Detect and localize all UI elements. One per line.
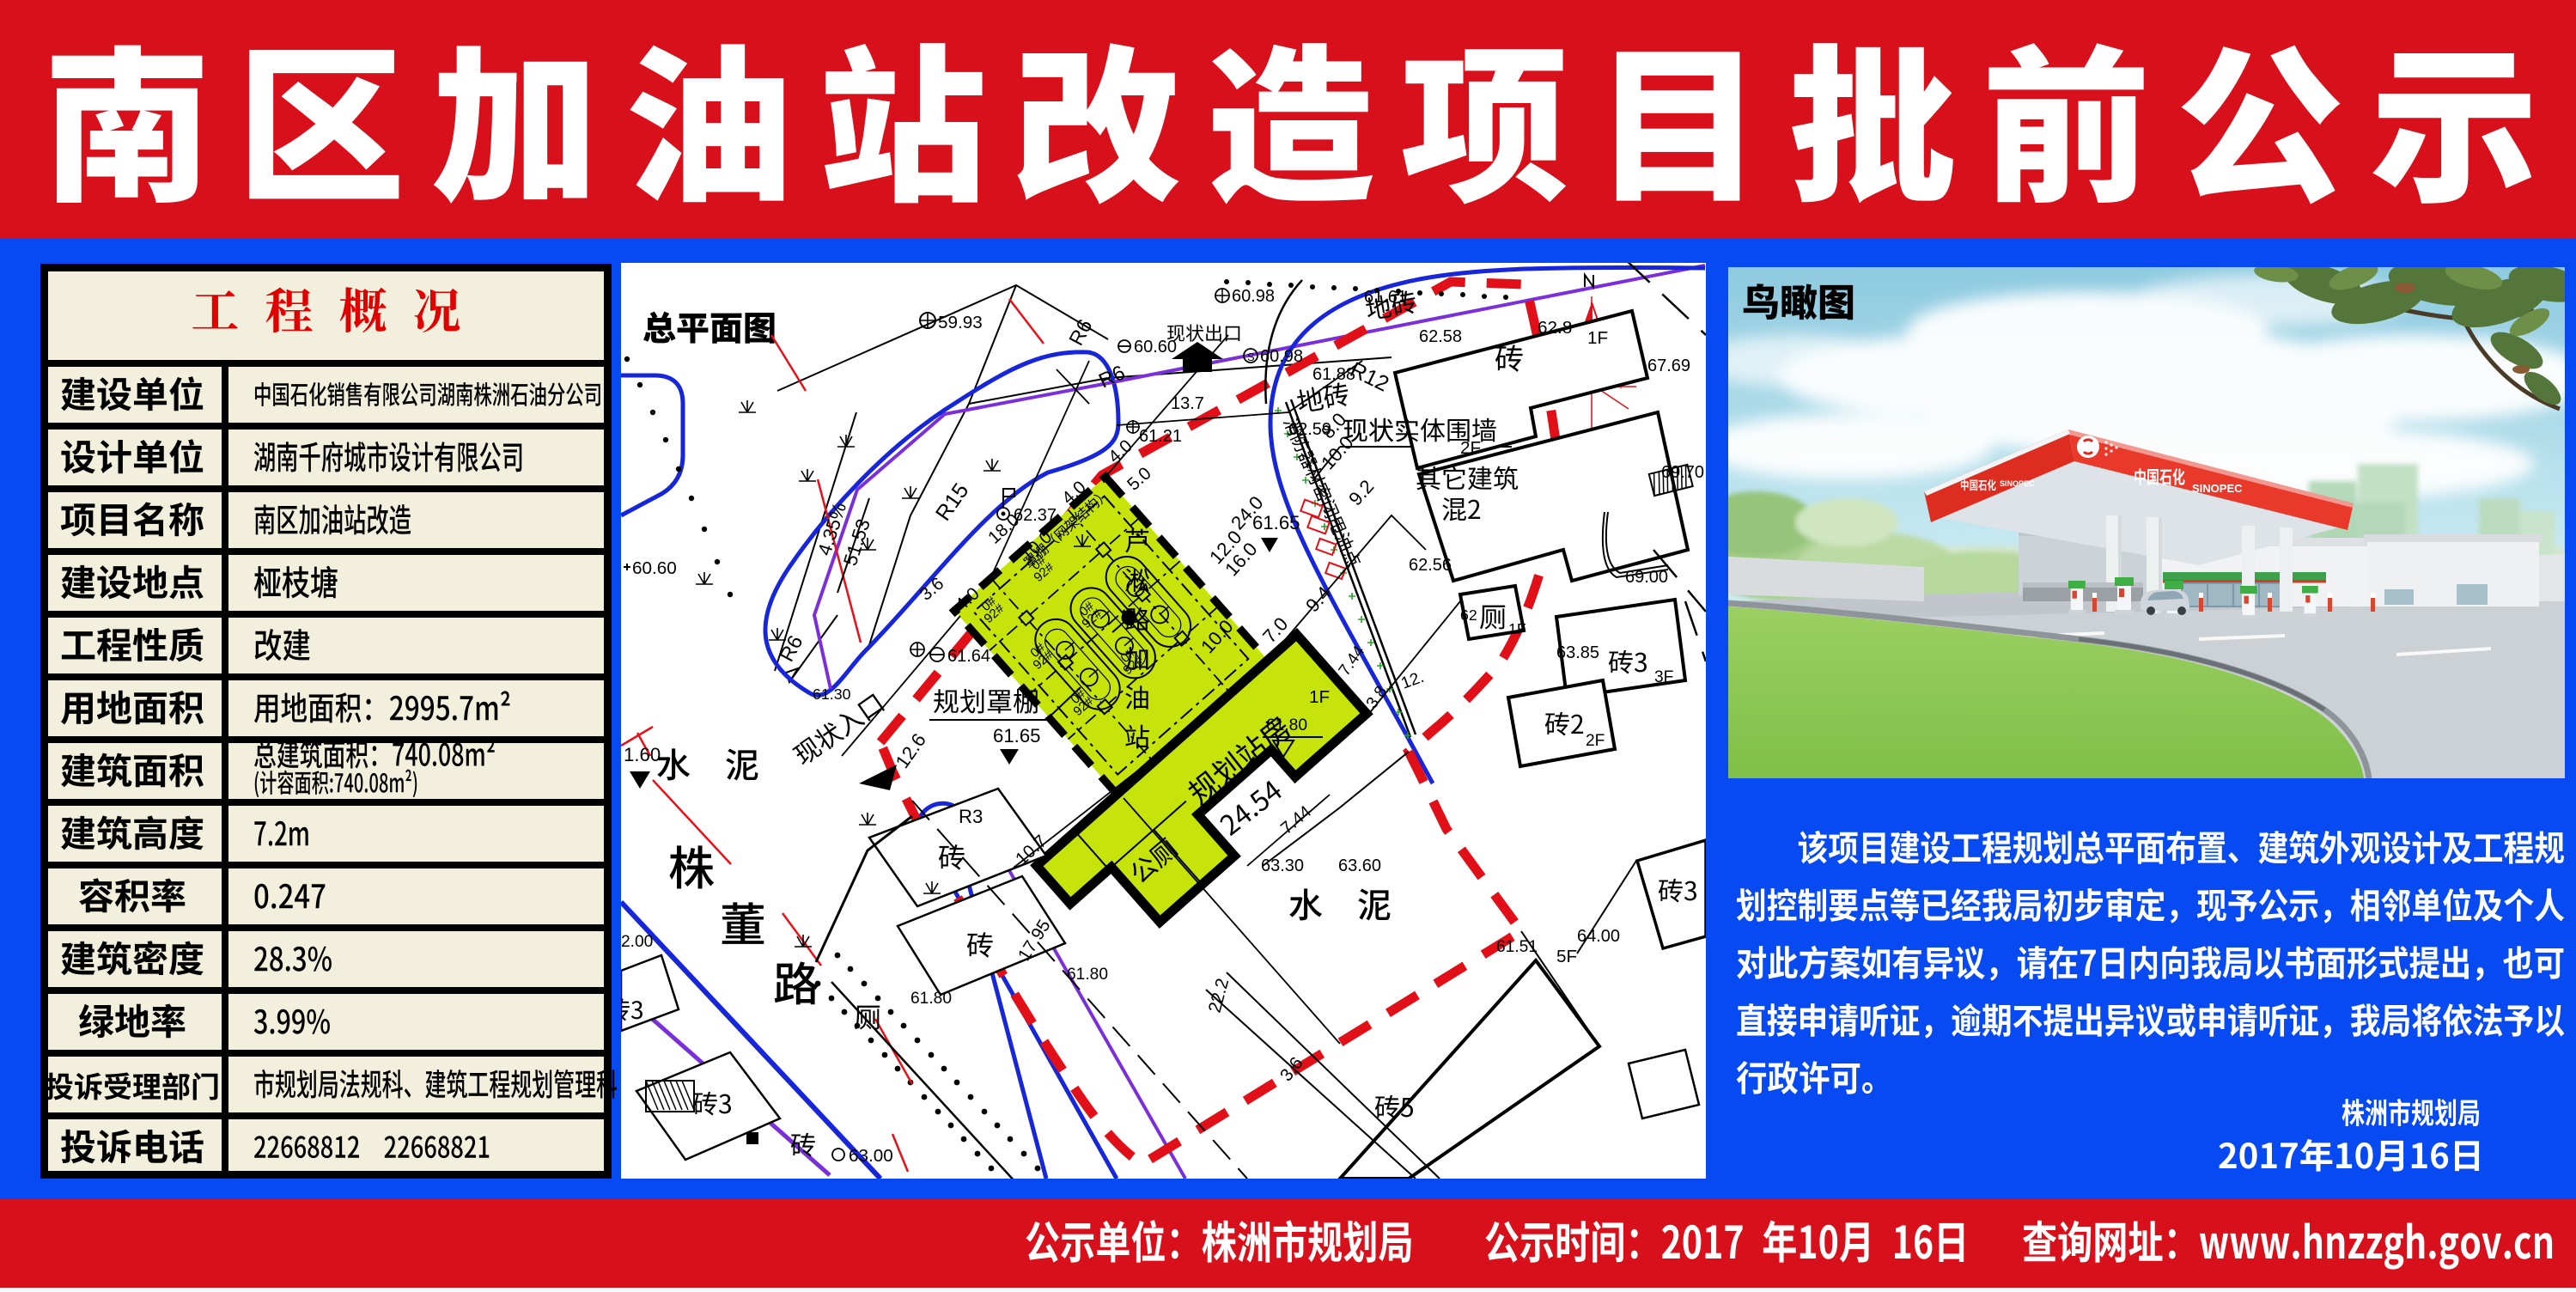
svg-text:59.93: 59.93 xyxy=(938,313,983,332)
svg-text:2F: 2F xyxy=(1586,732,1605,750)
svg-text:2F: 2F xyxy=(1460,438,1481,458)
svg-text:60.60: 60.60 xyxy=(1134,338,1177,357)
svg-text:61.65: 61.65 xyxy=(993,725,1041,747)
svg-text:3F: 3F xyxy=(1654,668,1673,686)
svg-text:62.56: 62.56 xyxy=(1409,556,1452,575)
svg-text:63.00: 63.00 xyxy=(849,1146,893,1166)
svg-text:S: S xyxy=(1247,350,1255,363)
svg-text:60.98: 60.98 xyxy=(1232,287,1275,306)
svg-text:62.59: 62.59 xyxy=(1288,420,1331,439)
svg-text:69.70: 69.70 xyxy=(1661,463,1704,482)
svg-text:61.80: 61.80 xyxy=(910,990,952,1008)
svg-text:SINOPEC: SINOPEC xyxy=(2000,479,2035,488)
svg-text:61.80: 61.80 xyxy=(1266,716,1307,734)
svg-text:SINOPEC: SINOPEC xyxy=(2192,482,2243,495)
svg-text:62.8: 62.8 xyxy=(1538,318,1572,338)
svg-text:1F: 1F xyxy=(1587,328,1608,348)
svg-text:63.60: 63.60 xyxy=(1338,856,1381,875)
svg-text:5F: 5F xyxy=(1556,947,1577,966)
svg-text:2.00: 2.00 xyxy=(621,933,653,951)
svg-text:61.64: 61.64 xyxy=(947,647,990,666)
svg-text:1F: 1F xyxy=(1309,687,1330,707)
svg-text:67.69: 67.69 xyxy=(1647,357,1690,375)
svg-text:61.30: 61.30 xyxy=(813,686,851,703)
svg-text:63.30: 63.30 xyxy=(1261,856,1304,875)
svg-text:13.7: 13.7 xyxy=(1171,394,1204,413)
svg-text:62: 62 xyxy=(1460,606,1477,624)
svg-text:63.85: 63.85 xyxy=(1556,643,1599,662)
svg-text:R3: R3 xyxy=(959,806,983,827)
svg-text:60.98: 60.98 xyxy=(1260,347,1303,366)
svg-text:1.60: 1.60 xyxy=(624,744,661,765)
svg-text:69.00: 69.00 xyxy=(1625,568,1668,587)
svg-text:62.58: 62.58 xyxy=(1419,327,1462,346)
svg-text:1F: 1F xyxy=(1508,620,1526,637)
svg-text:64.00: 64.00 xyxy=(1577,927,1620,946)
svg-text:60.60: 60.60 xyxy=(632,558,677,578)
svg-text:61.65: 61.65 xyxy=(1252,512,1300,533)
svg-text:61.80: 61.80 xyxy=(1067,966,1108,984)
